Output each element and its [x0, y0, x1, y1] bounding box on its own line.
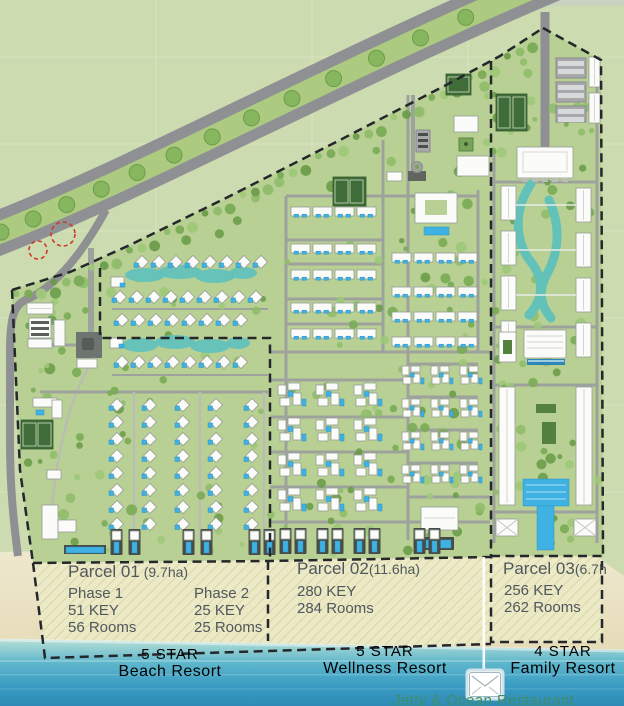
parcel-02-resort-class: 5 STAR Wellness Resort	[300, 643, 470, 678]
parcel-01-title: Parcel 01 (9.7ha)	[68, 562, 188, 582]
parcel-keys: 256 KEY	[504, 583, 581, 600]
resort-type: Beach Resort	[85, 663, 255, 681]
parcel-rooms: 262 Rooms	[504, 600, 581, 617]
phase-rooms: 56 Rooms	[68, 620, 136, 637]
parcel-01-area: (9.7ha)	[140, 564, 188, 580]
resort-type: Family Resort	[478, 660, 624, 678]
phase-keys: 51 KEY	[68, 603, 136, 620]
parcel-01-phase-1: Phase 1 51 KEY 56 Rooms	[68, 586, 136, 637]
parcel-03-stats: 256 KEY 262 Rooms	[504, 583, 581, 617]
parcel-01-resort-class: 5 STAR Beach Resort	[85, 646, 255, 681]
parcel-02-stats: 280 KEY 284 Rooms	[297, 584, 374, 618]
phase-rooms: 25 Rooms	[194, 620, 262, 637]
jetty-restaurant-label: Jetty & Ocean Restaurant	[393, 692, 574, 706]
parcel-01-phase-2: Phase 2 25 KEY 25 Rooms	[194, 586, 262, 637]
parcel-02-name: Parcel 02	[297, 559, 369, 578]
resort-type: Wellness Resort	[300, 660, 470, 678]
parcel-03-title: Parcel 03(6.7h	[503, 559, 607, 579]
star-rating: 4 STAR	[478, 643, 624, 660]
phase-label: Phase 1	[68, 586, 136, 603]
phase-keys: 25 KEY	[194, 603, 262, 620]
parcel-keys: 280 KEY	[297, 584, 374, 601]
resort-masterplan: Parcel 01 (9.7ha) Phase 1 51 KEY 56 Room…	[0, 0, 624, 706]
parcel-03-resort-class: 4 STAR Family Resort	[478, 643, 624, 678]
parcel-02-title: Parcel 02(11.6ha)	[297, 559, 420, 579]
phase-label: Phase 2	[194, 586, 262, 603]
star-rating: 5 STAR	[85, 646, 255, 663]
parcel-02-area: (11.6ha)	[369, 561, 420, 577]
star-rating: 5 STAR	[300, 643, 470, 660]
parcel-03-area: (6.7h	[575, 561, 607, 577]
parcel-01-name: Parcel 01	[68, 562, 140, 581]
parcel-03-name: Parcel 03	[503, 559, 575, 578]
parcel-rooms: 284 Rooms	[297, 601, 374, 618]
